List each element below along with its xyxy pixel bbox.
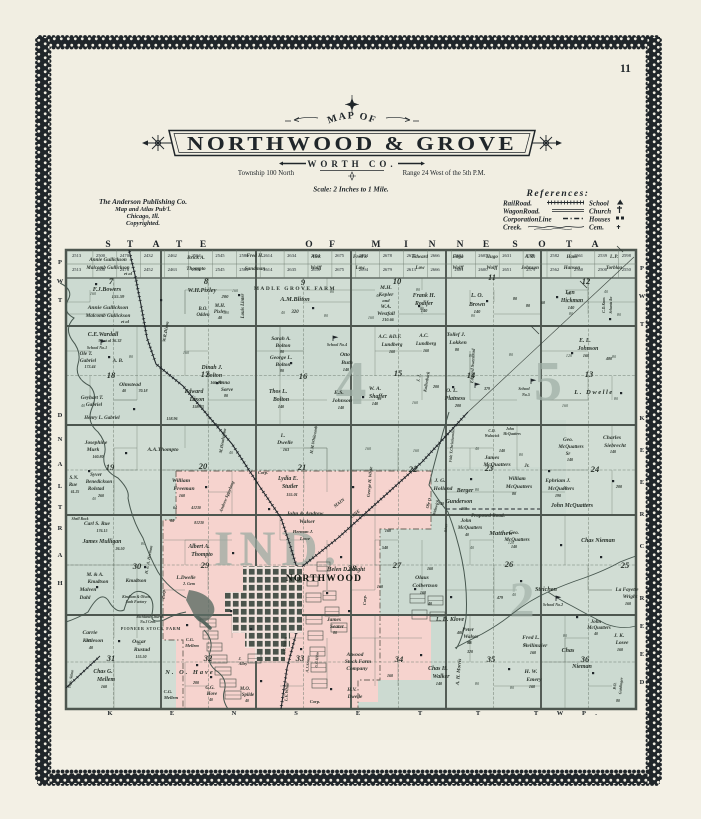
svg-text:10: 10 [393,276,402,286]
svg-text:A: A [58,461,63,468]
svg-text:D: D [640,679,645,686]
svg-text:Fred H.: Fred H. [246,253,263,259]
svg-text:Walser: Walser [463,634,479,640]
svg-text:160: 160 [625,601,631,606]
svg-text:160: 160 [529,684,536,689]
svg-text:Jr.: Jr. [523,464,529,469]
svg-text:W: W [557,710,564,717]
svg-text:O: O [305,240,312,250]
svg-text:James: James [484,455,500,461]
svg-text:H. W.: H. W. [523,669,537,675]
svg-text:Geyhart T.: Geyhart T. [81,395,104,401]
svg-text:S: S [105,240,110,250]
svg-text:McQuatters: McQuatters [457,526,483,531]
svg-text:River: River [444,523,449,532]
svg-text:A.C.: A.C. [418,334,428,339]
svg-text:210.66: 210.66 [381,317,394,322]
svg-text:M: M [372,240,381,250]
svg-text:2513: 2513 [72,253,82,258]
svg-text:CorporationLine: CorporationLine [503,216,552,224]
svg-text:Chicago, Ill.: Chicago, Ill. [127,213,160,220]
svg-text:160: 160 [377,584,384,589]
svg-text:11: 11 [620,63,631,75]
svg-text:200: 200 [432,384,439,389]
svg-text:Annie Gullickson: Annie Gullickson [87,305,129,311]
svg-text:320: 320 [290,310,299,315]
svg-text:Wright: Wright [623,594,638,600]
svg-text:Creek.: Creek. [503,224,522,232]
svg-text:Dinah J.: Dinah J. [201,365,223,371]
svg-text:160: 160 [583,353,590,358]
svg-text:Knudtson: Knudtson [125,578,147,584]
svg-text:2678: 2678 [383,253,393,258]
svg-text:160: 160 [101,684,108,689]
svg-text:A.M.: A.M. [524,255,535,260]
svg-text:Alek: Alek [310,255,321,260]
svg-text:Dwelle: Dwelle [276,440,293,446]
svg-text:No.3 Cem.: No.3 Cem. [139,620,156,624]
svg-text:No.5: No.5 [521,392,530,397]
svg-text:2598: 2598 [622,253,632,258]
svg-text:J. K.: J. K. [613,633,624,639]
svg-text:80: 80 [616,699,620,703]
svg-text:Thos L.: Thos L. [269,389,287,395]
svg-text:40: 40 [427,601,432,606]
svg-text:Atwood: Atwood [346,652,364,658]
svg-text:61.25: 61.25 [71,490,80,494]
svg-text:2432: 2432 [144,253,154,258]
svg-text:W: W [57,278,64,285]
svg-text:64: 64 [173,505,177,510]
svg-text:31: 31 [106,653,116,663]
svg-text:Dixon: Dixon [189,397,205,403]
svg-text:Mellem: Mellem [96,677,116,683]
svg-text:Carl S. Rue: Carl S. Rue [84,521,111,527]
svg-text:Rue: Rue [69,483,78,488]
svg-text:John: John [460,519,472,524]
svg-text:140: 140 [567,457,573,462]
svg-text:2562: 2562 [550,267,560,272]
svg-text:P: P [640,265,644,272]
svg-text:McQuatters: McQuatters [557,444,583,450]
svg-text:2539: 2539 [598,253,608,258]
svg-text:140: 140 [499,448,505,453]
svg-text:Copyrighted.: Copyrighted. [126,220,160,227]
svg-text:200: 200 [221,294,230,299]
svg-text:M.O.: M.O. [239,687,250,692]
svg-text:Berger: Berger [456,488,474,494]
svg-text:Carrie: Carrie [83,630,98,636]
svg-text:540: 540 [382,545,389,550]
svg-text:160: 160 [530,650,537,655]
svg-text:2: 2 [510,571,535,627]
svg-text:William: William [172,478,191,484]
svg-text:2675: 2675 [335,267,345,272]
svg-text:Peter: Peter [462,627,475,633]
svg-text:2513: 2513 [72,267,82,272]
svg-text:2452: 2452 [144,267,154,272]
svg-text:160: 160 [385,528,392,533]
svg-text:Odden: Odden [196,313,209,318]
svg-text:PIONEER STOCK FARM: PIONEER STOCK FARM [121,626,181,631]
svg-text:Emery: Emery [525,677,542,683]
svg-text:140: 140 [474,309,481,314]
svg-text:Ephriam J.: Ephriam J. [544,478,570,484]
svg-text:E: E [640,651,644,658]
svg-text:2614: 2614 [263,253,273,258]
svg-text:McQuatters: McQuatters [482,462,510,468]
svg-text:MADLE GROVE FARM: MADLE GROVE FARM [254,286,336,292]
svg-text:Tollef J.: Tollef J. [447,332,466,338]
svg-text:Rolstad: Rolstad [88,486,105,492]
svg-text:L. O.: L. O. [470,293,483,299]
svg-text:Dwelle: Dwelle [347,694,363,700]
svg-text:W.H.Pixley: W.H.Pixley [188,287,217,294]
svg-text:S.N.: S.N. [70,476,79,481]
svg-text:Johnson: Johnson [577,346,599,352]
svg-text:140: 140 [338,405,345,410]
svg-text:Low: Low [355,266,366,271]
svg-text:Thompto: Thompto [186,266,206,272]
svg-text:25: 25 [620,560,630,570]
svg-text:Sash Factory: Sash Factory [126,600,147,604]
svg-text:N: N [232,710,237,717]
svg-text:22: 22 [408,464,418,474]
svg-text:34: 34 [394,654,404,664]
svg-text:80: 80 [280,349,284,354]
svg-text:Buth: Buth [340,360,353,366]
svg-text:2462: 2462 [168,253,178,258]
svg-text:H: H [57,580,62,587]
svg-text:Gunderson: Gunderson [446,499,473,505]
svg-text:A: A [153,240,160,250]
svg-text:32: 32 [203,653,213,663]
svg-text:40: 40 [244,699,249,703]
svg-text:John & Andrew: John & Andrew [286,511,324,517]
svg-text:C: C [640,543,645,550]
svg-text:2651: 2651 [502,267,512,272]
svg-text:Lowe: Lowe [299,536,310,541]
svg-text:John: John [590,620,602,625]
svg-text:C.D.Knox: C.D.Knox [602,297,606,313]
svg-text:O: O [538,240,545,250]
svg-text:140: 140 [421,308,428,313]
svg-text:Josephine: Josephine [84,440,108,446]
svg-text:School No.4: School No.4 [327,342,347,347]
svg-text:40: 40 [217,315,223,320]
svg-text:2550: 2550 [622,267,632,272]
svg-text:L.: L. [280,433,285,439]
svg-text:Edward: Edward [184,389,204,395]
svg-text:Lydia E.: Lydia E. [277,476,298,482]
svg-text:33: 33 [295,653,305,663]
svg-text:Walker: Walker [433,674,451,680]
svg-text:Frank H.: Frank H. [413,293,436,299]
svg-text:Stock Farm: Stock Farm [345,659,371,665]
svg-text:E: E [170,710,174,717]
svg-text:479: 479 [496,595,504,600]
svg-text:Dahl: Dahl [78,595,91,601]
svg-text:McQuatters: McQuatters [586,626,611,631]
svg-text:N: N [457,240,464,250]
svg-text:McQuatters: McQuatters [503,537,529,543]
svg-text:T: T [418,710,423,717]
svg-text:Sandman: Sandman [245,266,266,272]
svg-text:81230: 81230 [194,521,204,525]
svg-text:160: 160 [461,506,468,511]
svg-text:Chas H.: Chas H. [428,666,448,672]
svg-text:160: 160 [368,315,375,320]
svg-text:A.C. &D.F.: A.C. &D.F. [377,335,401,340]
svg-text:School: School [518,386,530,391]
svg-text:2675: 2675 [335,253,345,258]
svg-text:140: 140 [436,681,443,686]
svg-text:Mellem: Mellem [184,643,199,648]
svg-text:2631: 2631 [502,253,512,258]
svg-text:Low: Low [415,266,426,271]
svg-text:155.01: 155.01 [286,492,298,497]
svg-text:Johnson: Johnson [331,398,352,404]
svg-text:R: R [640,511,645,518]
svg-text:C.G.: C.G. [186,637,194,642]
svg-text:Wolff: Wolff [452,266,465,271]
svg-text:Corp.: Corp. [362,595,367,605]
svg-text:29: 29 [200,560,210,570]
svg-text:Walser: Walser [299,519,316,525]
svg-text:400: 400 [456,630,464,635]
svg-text:160: 160 [179,493,186,498]
svg-text:Syver: Syver [90,472,103,478]
svg-text:Lundberg: Lundberg [380,342,402,348]
svg-text:A. B.: A. B. [112,359,123,364]
svg-text:M.H.: M.H. [214,304,225,309]
svg-text:McQuatters: McQuatters [502,432,521,436]
svg-text:Walswick: Walswick [485,434,500,438]
svg-text:160: 160 [562,403,569,408]
svg-text:Township 100 North: Township 100 North [238,170,295,177]
svg-text:2679: 2679 [383,267,393,272]
svg-text:H.V.: H.V. [346,687,356,693]
svg-text:21: 21 [297,462,307,472]
svg-text:140: 140 [343,367,350,372]
svg-text:Otto: Otto [340,352,350,358]
svg-text:Geo.: Geo. [563,437,573,443]
svg-text:School No.1: School No.1 [87,345,107,350]
svg-text:Gabriel: Gabriel [86,402,103,408]
svg-text:James: James [326,617,341,623]
svg-text:P: P [582,710,586,717]
svg-text:160: 160 [427,566,433,571]
svg-text:School: School [589,200,609,208]
svg-text:140: 140 [372,401,379,406]
svg-text:K: K [639,415,644,422]
svg-text:Platness: Platness [445,396,466,402]
svg-text:Wolff: Wolff [486,266,499,271]
svg-text:26: 26 [504,559,514,569]
svg-text:2635: 2635 [287,267,297,272]
svg-text:Alley: Alley [238,661,248,666]
svg-text:A.A.Thompto: A.A.Thompto [146,447,178,453]
svg-text:173.44: 173.44 [85,364,96,369]
svg-text:Annie Gullickson: Annie Gullickson [88,257,127,263]
svg-text:158.96: 158.96 [167,416,178,421]
svg-text:160: 160 [413,448,420,453]
svg-text:200: 200 [615,484,623,489]
svg-text:160: 160 [232,288,239,293]
svg-text:Stutler: Stutler [282,484,299,490]
svg-text:480: 480 [605,356,613,361]
svg-text:C.G.: C.G. [164,689,173,694]
svg-text:M. & A.: M. & A. [85,572,103,578]
svg-text:11: 11 [488,272,496,282]
svg-text:12: 12 [582,276,591,286]
svg-text:A: A [592,240,599,250]
svg-text:Losee: Losee [615,640,629,646]
svg-text:R: R [640,595,645,602]
svg-text:Scale: 2 Inches to 1 Mile.: Scale: 2 Inches to 1 Mile. [313,186,389,194]
svg-text:Rustad: Rustad [133,647,150,653]
svg-text:190: 190 [555,493,561,498]
svg-text:G.G.: G.G. [205,686,214,691]
svg-text:D: D [58,412,63,419]
svg-text:Herman J.: Herman J. [292,529,313,534]
svg-text:Nieman: Nieman [571,664,592,670]
svg-text:Oscar: Oscar [132,639,146,645]
svg-text:80: 80 [224,393,228,398]
svg-text:Hans: Hans [565,255,577,260]
svg-text:40: 40 [88,645,94,650]
svg-text:Torblaa: Torblaa [606,266,622,271]
svg-text:Mellem: Mellem [163,695,179,700]
svg-text:40: 40 [121,388,126,393]
svg-text:5: 5 [534,351,562,413]
svg-text:163: 163 [283,447,289,452]
svg-text:18: 18 [107,370,116,380]
svg-text:E: E [200,240,206,250]
svg-text:379: 379 [483,386,490,391]
svg-text:2582: 2582 [550,253,560,258]
svg-text:Geo.: Geo. [509,530,519,536]
svg-text:C.O.: C.O. [488,429,495,433]
svg-text:2666: 2666 [431,267,441,272]
svg-text:Malven: Malven [79,587,97,593]
svg-text:Helen D.Wright: Helen D.Wright [326,567,365,573]
svg-text:A: A [58,552,63,559]
svg-text:F: F [329,240,335,250]
svg-text:N: N [58,436,63,443]
svg-text:2463: 2463 [168,267,178,272]
svg-text:L. D. Klove: L. D. Klove [435,617,464,623]
svg-text:Johnson: Johnson [520,266,539,271]
svg-text:Albert A.: Albert A. [187,544,209,550]
svg-text:RailRoad.: RailRoad. [502,200,532,208]
svg-text:Steichen: Steichen [535,586,558,593]
svg-text:80: 80 [512,491,516,496]
svg-text:Cem.: Cem. [589,224,604,232]
svg-text:E: E [356,710,360,717]
svg-text:Len: Len [564,290,574,296]
svg-text:160: 160 [183,350,190,355]
svg-text:I: I [404,240,408,250]
svg-text:T: T [58,504,63,511]
svg-text:176.15: 176.15 [97,528,108,533]
svg-text:Hove: Hove [206,692,218,697]
svg-text:WagonRoad.: WagonRoad. [503,208,540,216]
svg-text:John McQuatters: John McQuatters [550,503,594,509]
svg-text:160: 160 [365,446,372,451]
svg-text:80: 80 [467,640,471,645]
svg-text:T: T [58,297,63,304]
svg-text:N. O. Have: N. O. Have [164,669,214,676]
svg-text:158.93: 158.93 [192,404,204,409]
svg-text:Shaffer: Shaffer [369,394,388,400]
svg-text:Map and Atlas Pub'l.: Map and Atlas Pub'l. [114,206,171,213]
svg-text:26.50: 26.50 [115,546,125,551]
svg-text:T: T [566,240,573,250]
svg-text:2545: 2545 [215,253,225,258]
svg-text:140: 140 [278,404,285,409]
svg-text:et al: et al [121,319,130,324]
svg-text:Stellimzier: Stellimzier [523,643,548,649]
svg-text:Henry L. Gabriel: Henry L. Gabriel [83,416,120,421]
svg-text:Anna: Anna [217,380,230,386]
svg-text:L. Dwelle: L. Dwelle [573,389,614,396]
svg-text:R: R [58,525,63,532]
svg-text:P.O.: P.O. [612,682,618,690]
svg-text:Bolton: Bolton [272,397,289,403]
svg-text:160: 160 [420,590,427,595]
svg-text:A.M.Bliton: A.M.Bliton [279,296,310,303]
svg-text:Murk: Murk [86,447,100,453]
svg-text:NORTHWOOD: NORTHWOOD [286,574,362,584]
svg-text:Sarah A.: Sarah A. [271,336,291,342]
svg-text:160: 160 [412,400,419,405]
svg-text:200: 200 [454,403,462,408]
svg-text:Schantz &c: Schantz &c [609,296,613,313]
svg-text:E: E [640,447,644,454]
svg-text:The Anderson Publishing Co.: The Anderson Publishing Co. [99,198,187,206]
svg-text:Corp.: Corp. [310,699,321,704]
svg-text:Louis Linter: Louis Linter [241,294,246,320]
svg-text:School No.2: School No.2 [543,602,563,607]
svg-text:Range 24 West of the 5th P.M.: Range 24 West of the 5th P.M. [403,170,486,177]
svg-text:S: S [512,240,517,250]
svg-text:WORTH CO.: WORTH CO. [307,159,396,169]
svg-text:320: 320 [466,649,473,654]
svg-text:E. L.: E. L. [578,338,591,344]
svg-text:Lokken: Lokken [448,340,466,346]
svg-text:20: 20 [198,461,208,471]
svg-text:160: 160 [387,673,393,678]
svg-text:Bolton: Bolton [205,373,222,379]
svg-text:155.50: 155.50 [136,654,147,659]
svg-text:Brown: Brown [468,302,485,308]
svg-text:Spilde: Spilde [242,693,255,698]
svg-text:George L.: George L. [270,355,292,361]
svg-text:13: 13 [585,369,594,379]
svg-text:P: P [58,259,62,266]
svg-text:40: 40 [464,533,469,537]
svg-text:Benedickson: Benedickson [85,480,113,485]
svg-text:19: 19 [106,462,115,472]
svg-text:Charles: Charles [603,435,621,441]
svg-text:W. A.: W. A. [369,386,381,392]
svg-text:Company: Company [346,666,368,672]
svg-text:15: 15 [394,368,403,378]
svg-text:2666: 2666 [431,253,441,258]
svg-text:Kittleson: Kittleson [82,638,104,644]
svg-text:2. Gem: 2. Gem [182,581,195,586]
